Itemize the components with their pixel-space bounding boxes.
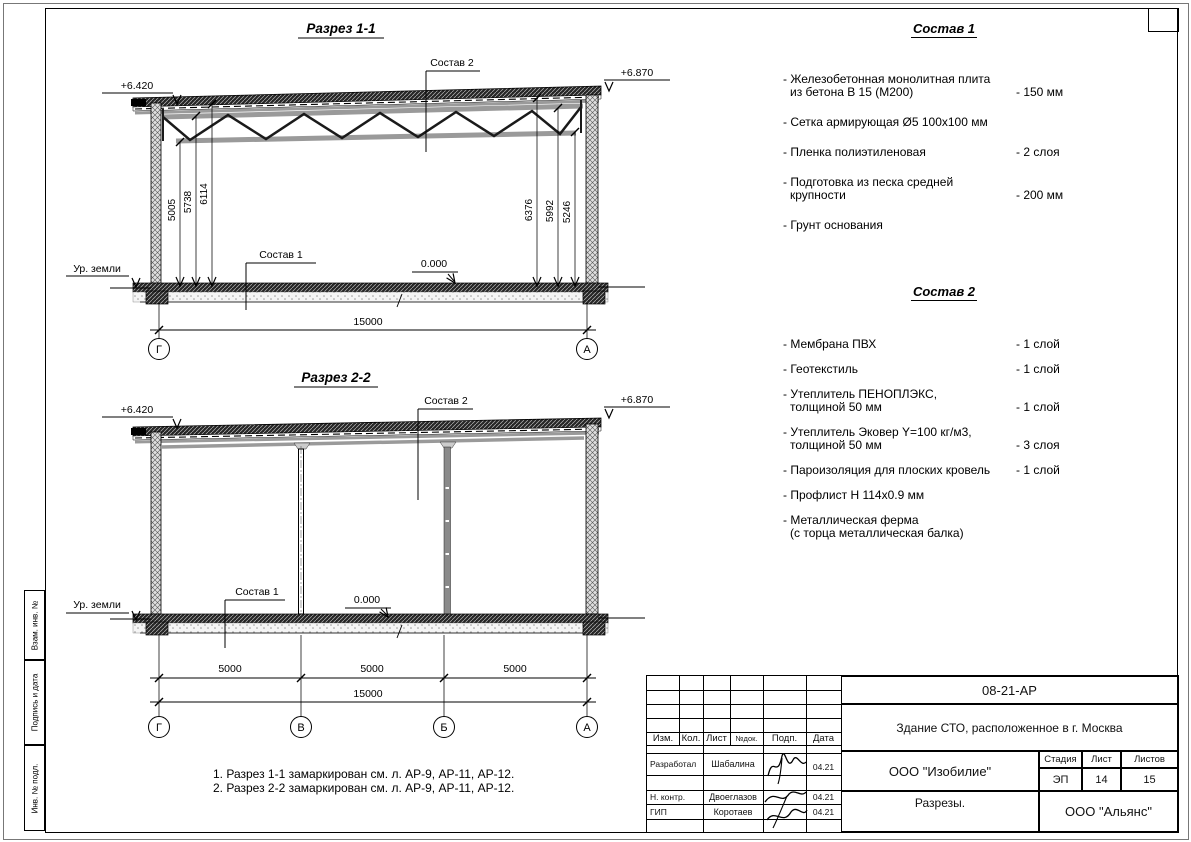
axis-letter: А	[583, 344, 591, 356]
ground-label: Ур. земли	[73, 263, 121, 275]
dim-value: 5738	[183, 190, 194, 213]
contractor-cell: ООО "Альянс"	[1039, 791, 1178, 832]
parapet-cap	[131, 99, 146, 106]
axis-bubbles-2-2: Г В Б А	[149, 717, 598, 738]
drawing-notes: 1. Разрез 1-1 замаркирован см. л. АР-9, …	[213, 768, 514, 795]
axis-letter: Г	[156, 722, 162, 734]
item-text: - Профлист Н 114x0.9 мм	[783, 489, 1016, 502]
dim-value: 5005	[167, 198, 178, 221]
footing	[583, 622, 605, 635]
col-header-data: Дата	[806, 732, 841, 745]
level-mark-right: +6.870	[604, 67, 670, 91]
ground-level-label-1-1: Ур. земли	[66, 263, 140, 287]
dim-value: 6376	[524, 198, 535, 221]
overall-dim-1-1: 15000	[150, 303, 596, 338]
item-value: - 2 слоя	[1016, 146, 1105, 159]
sostav1-title: Состав 1	[783, 22, 1105, 35]
dim-value: 15000	[353, 688, 382, 700]
sheet-name-cell: Разрезы.	[841, 791, 1039, 832]
date-row2: 04.21	[806, 790, 841, 804]
item-text: крупности	[783, 189, 1016, 202]
left-wall-2-2	[151, 432, 161, 614]
axis-letter: Б	[440, 722, 447, 734]
list-item: - Грунт основания	[783, 219, 1105, 232]
axis-letter: Г	[156, 344, 162, 356]
role-razrabotal: Разработал	[650, 753, 703, 775]
list-item: - Пароизоляция для плоских кровель - 1 с…	[783, 464, 1105, 477]
signature-2	[761, 786, 809, 830]
list-item: - Профлист Н 114x0.9 мм	[783, 489, 1105, 502]
footing	[146, 291, 168, 304]
dim-value: 5000	[360, 663, 384, 675]
item-value: - 150 мм	[1016, 86, 1105, 99]
item-text: из бетона В 15 (М200)	[783, 86, 1016, 99]
col-header-izm: Изм.	[647, 732, 679, 745]
item-text: - Пароизоляция для плоских кровель	[783, 464, 1016, 477]
item-value: - 1 слой	[1016, 363, 1105, 376]
zero-level-1-1: 0.000	[412, 258, 458, 285]
name-korotaev: Коротаев	[703, 804, 763, 819]
item-value: - 200 мм	[1016, 189, 1105, 202]
stage-value-cell: ЭП	[1039, 768, 1082, 791]
list-item: - Железобетонная монолитная плита из бет…	[783, 73, 1105, 99]
sostav1-list: Состав 1 - Железобетонная монолитная пли…	[783, 22, 1105, 249]
floor-1-1	[110, 283, 645, 307]
date-row3: 04.21	[806, 804, 841, 819]
col-header-podp: Подп.	[763, 732, 806, 745]
section-2-2: Разрез 2-2	[66, 370, 670, 738]
item-text: - Грунт основания	[783, 219, 1016, 232]
item-value: - 3 слоя	[1016, 439, 1105, 452]
item-text: - Пленка полиэтиленовая	[783, 146, 1016, 159]
item-value: - 1 слой	[1016, 464, 1105, 477]
sostav2-title: Состав 2	[783, 285, 1105, 298]
sostav2-list: Состав 2 - Мембрана ПВХ - 1 слой - Геоте…	[783, 285, 1105, 552]
list-item: - Металлическая ферма (с торца металличе…	[783, 514, 1105, 540]
footing	[583, 291, 605, 304]
item-text: (с торца металлическая балка)	[783, 527, 1016, 540]
ground-level-label-2-2: Ур. земли	[66, 599, 140, 620]
dim-value: 5992	[545, 199, 556, 222]
section1-title: Разрез 1-1	[306, 21, 375, 36]
level-value: +6.420	[121, 80, 154, 92]
item-text: - Сетка армирующая Ø5 100x100 мм	[783, 116, 1016, 129]
name-shabalina: Шабалина	[703, 753, 763, 775]
item-value: - 1 слой	[1016, 338, 1105, 351]
role-nkontr: Н. контр.	[650, 790, 703, 804]
dim-value: 5000	[503, 663, 527, 675]
parapet-cap	[131, 428, 146, 435]
col-header-ndok: №док.	[730, 732, 763, 745]
level-value: +6.870	[621, 67, 654, 79]
item-text: толщиной 50 мм	[783, 401, 1016, 414]
footing	[146, 622, 168, 635]
project-name-cell: Здание СТО, расположенное в г. Москва	[841, 704, 1178, 751]
note-line: 2. Разрез 2-2 замаркирован см. л. АР-9, …	[213, 782, 514, 796]
item-text: толщиной 50 мм	[783, 439, 1016, 452]
drawing-sheet: Взам. инв. № Подпись и дата Инв. № подл.	[0, 0, 1191, 842]
signature-1	[763, 746, 808, 786]
right-wall-2-2	[586, 424, 598, 614]
item-text: - Геотекстиль	[783, 363, 1016, 376]
ground-label: Ур. земли	[73, 599, 121, 611]
dim-value: 5000	[218, 663, 242, 675]
level-mark-right: +6.870	[604, 394, 670, 418]
span-dims-2-2: 5000 5000 5000 15000	[150, 635, 596, 716]
zero-label: 0.000	[421, 258, 447, 270]
dim-value: 5246	[562, 200, 573, 223]
list-item: - Пленка полиэтиленовая - 2 слоя	[783, 146, 1105, 159]
floor-2-2	[110, 614, 645, 638]
dim-value: 6114	[199, 183, 210, 205]
roof-2-2	[131, 418, 601, 447]
leader-label: Состав 1	[235, 586, 279, 598]
dim-value: 15000	[353, 316, 382, 328]
stage-label-cell: Стадия	[1039, 751, 1082, 768]
level-value: +6.870	[621, 394, 654, 406]
list-item: - Мембрана ПВХ - 1 слой	[783, 338, 1105, 351]
left-wall-1-1	[151, 103, 161, 283]
sheet-number-cell: 14	[1082, 768, 1121, 791]
axis-bubbles-1-1: Г А	[149, 339, 598, 360]
axis-letter: В	[297, 722, 304, 734]
company-cell: ООО "Изобилие"	[841, 751, 1039, 791]
list-item: - Утеплитель ПЕНОПЛЭКС, толщиной 50 мм -…	[783, 388, 1105, 414]
title-block: Изм. Кол. Лист №док. Подп. Дата Разработ…	[646, 675, 1179, 833]
list-item: - Подготовка из песка средней крупности …	[783, 176, 1105, 202]
col-header-list: Лист	[703, 732, 730, 745]
item-text: - Мембрана ПВХ	[783, 338, 1016, 351]
column-axis-b	[440, 442, 456, 614]
axis-letter: А	[583, 722, 591, 734]
note-line: 1. Разрез 1-1 замаркирован см. л. АР-9, …	[213, 768, 514, 782]
leader-label: Состав 2	[430, 57, 474, 69]
col-header-kol: Кол.	[679, 732, 703, 745]
item-value: - 1 слой	[1016, 401, 1105, 414]
section2-title: Разрез 2-2	[301, 370, 371, 385]
date-row1: 04.21	[806, 756, 841, 778]
leader-label: Состав 2	[424, 395, 468, 407]
leader-label: Состав 1	[259, 249, 303, 261]
section-1-1: Разрез 1-1	[66, 21, 670, 360]
list-item: - Утеплитель Эковер Y=100 кг/м3, толщино…	[783, 426, 1105, 452]
sheets-total-cell: 15	[1121, 768, 1178, 791]
zero-label: 0.000	[354, 594, 380, 606]
height-dims-right: 6376 5992 5246	[524, 94, 579, 287]
sheet-label-cell: Лист	[1082, 751, 1121, 768]
list-item: - Геотекстиль - 1 слой	[783, 363, 1105, 376]
level-value: +6.420	[121, 404, 154, 416]
sheets-label-cell: Листов	[1121, 751, 1178, 768]
level-mark-left: +6.420	[102, 404, 181, 428]
list-item: - Сетка армирующая Ø5 100x100 мм	[783, 116, 1105, 129]
role-gip: ГИП	[650, 804, 703, 819]
right-wall-1-1	[586, 95, 598, 283]
column-axis-v	[294, 443, 310, 620]
doc-number-cell: 08-21-АР	[841, 676, 1178, 704]
name-dvoeglazov: Двоеглазов	[703, 790, 763, 804]
